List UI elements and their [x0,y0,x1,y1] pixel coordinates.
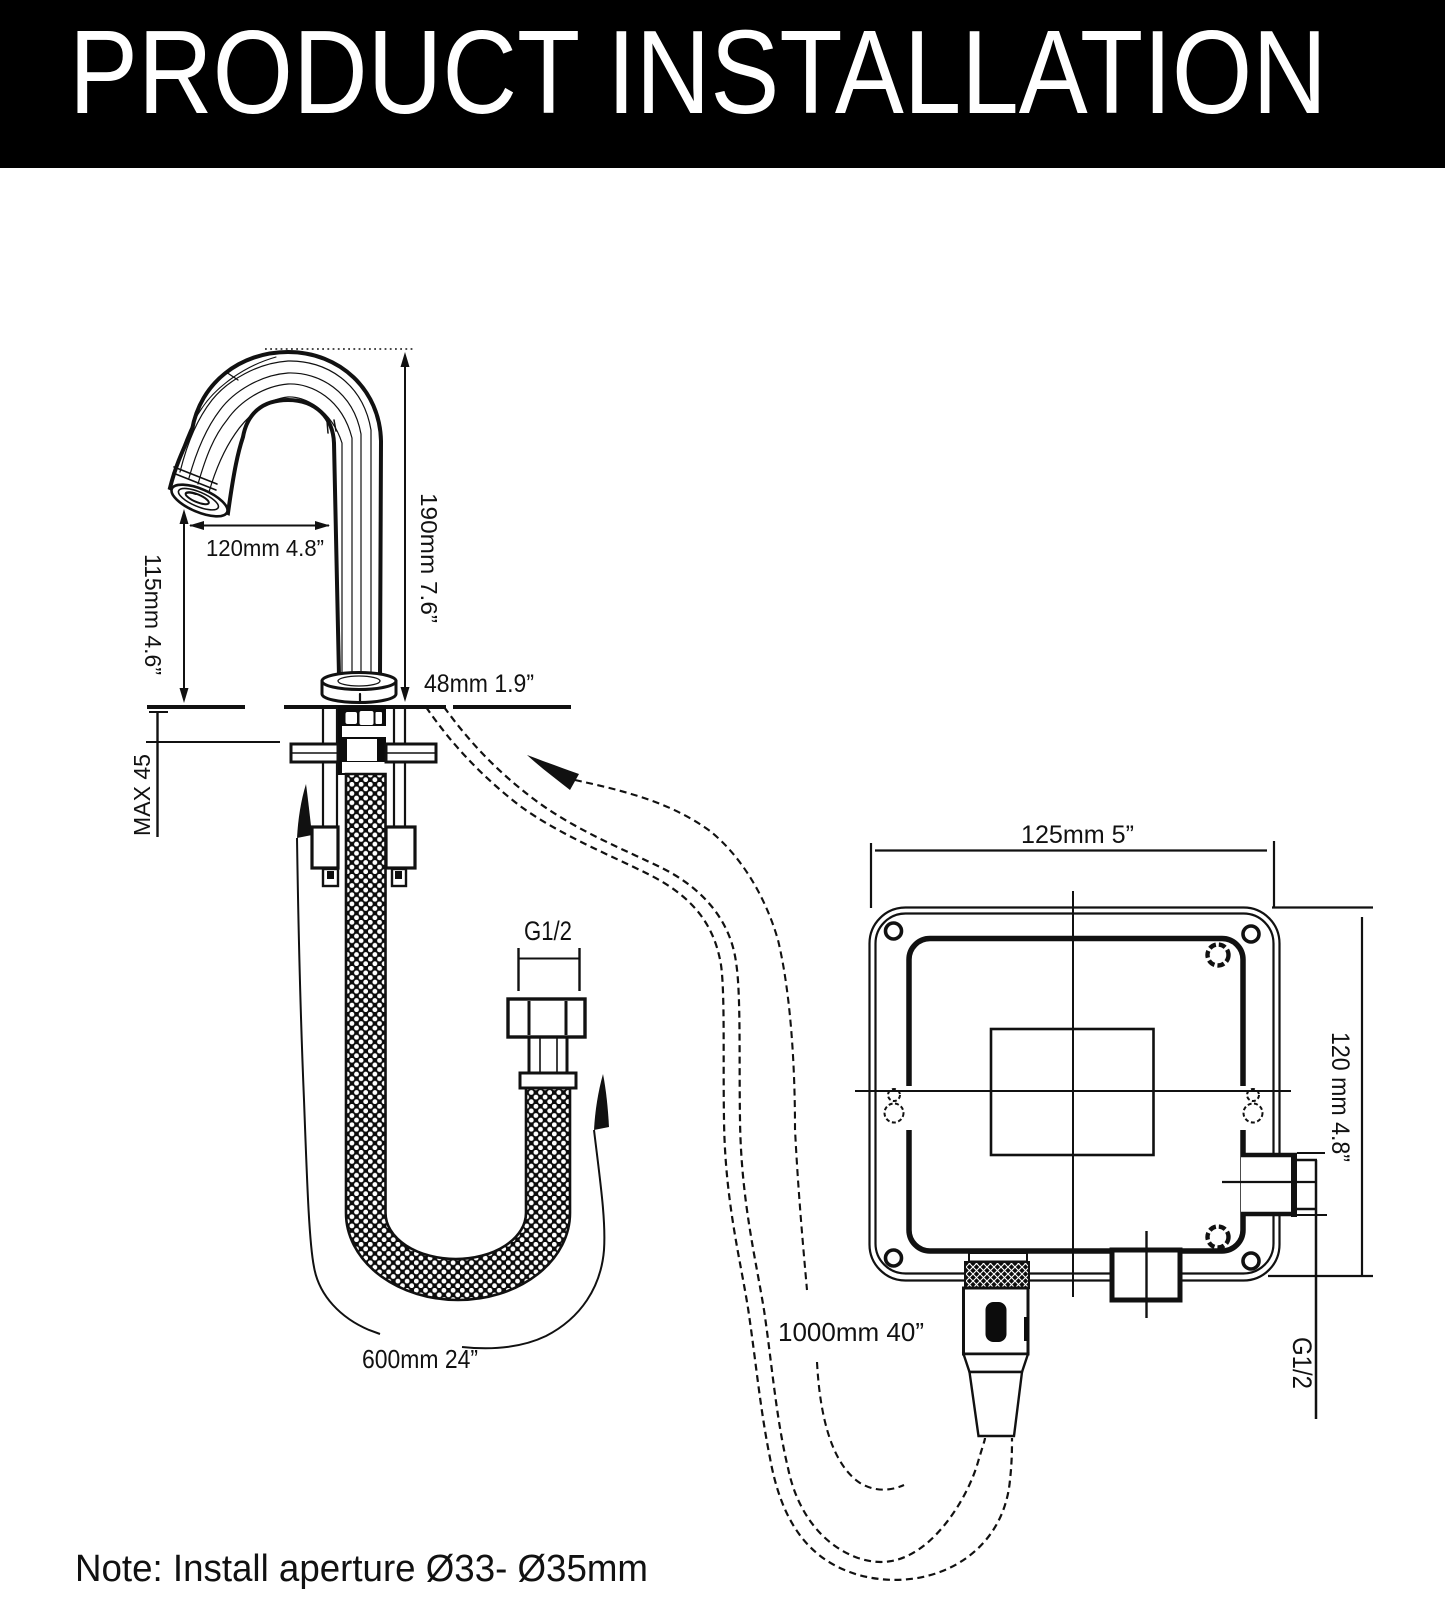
svg-text:48mm 1.9”: 48mm 1.9” [424,670,534,698]
svg-text:G1/2: G1/2 [524,916,572,946]
svg-text:Note: Install aperture Ø33- Ø3: Note: Install aperture Ø33- Ø35mm [75,1548,648,1590]
svg-text:120mm 4.8”: 120mm 4.8” [206,535,324,561]
svg-text:115mm 4.6”: 115mm 4.6” [140,554,166,675]
svg-text:125mm 5”: 125mm 5” [1021,821,1134,849]
svg-text:1000mm 40”: 1000mm 40” [778,1317,924,1347]
svg-text:MAX 45: MAX 45 [129,754,155,836]
svg-text:600mm 24”: 600mm 24” [362,1344,478,1374]
svg-text:PRODUCT INSTALLATION: PRODUCT INSTALLATION [69,6,1327,139]
svg-text:G1/2: G1/2 [1287,1337,1317,1389]
svg-text:190mm 7.6”: 190mm 7.6” [416,493,442,623]
svg-text:120 mm 4.8”: 120 mm 4.8” [1326,1032,1354,1162]
